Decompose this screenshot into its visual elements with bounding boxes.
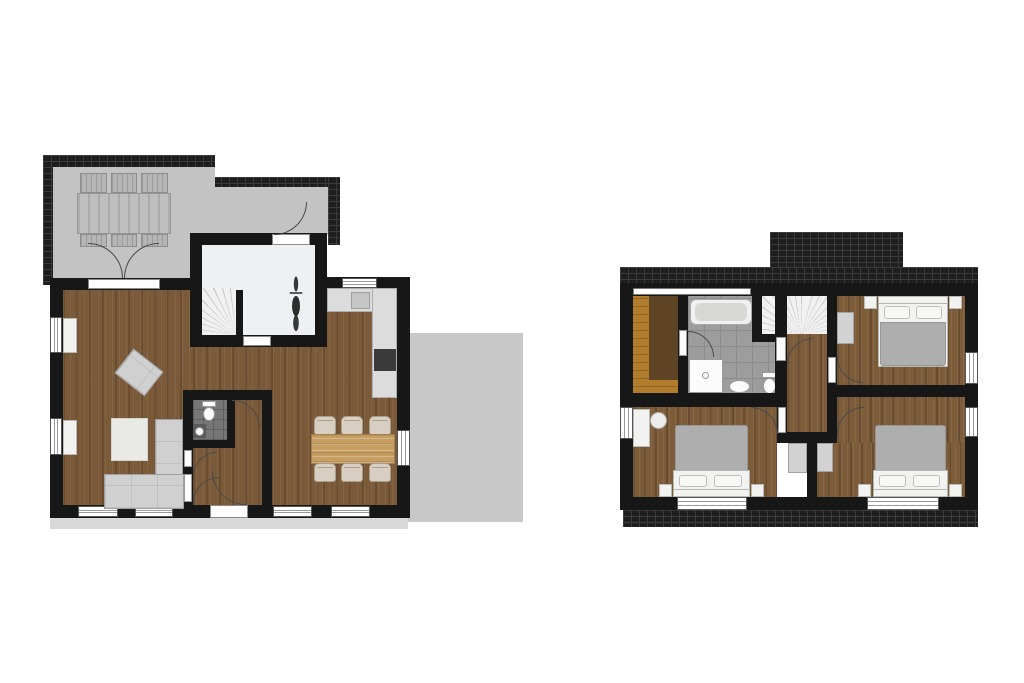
walkway-strip xyxy=(50,518,408,529)
dining-chair xyxy=(314,463,336,482)
wc-toilet xyxy=(203,407,215,421)
nightstand xyxy=(751,484,764,497)
outdoor-chair xyxy=(141,173,168,193)
pillow xyxy=(679,475,707,487)
outdoor-chair xyxy=(111,173,137,193)
bedroom1-bottom-wall xyxy=(827,385,978,397)
window xyxy=(965,407,978,437)
covered-porch xyxy=(215,187,328,235)
nightstand xyxy=(858,484,871,497)
pillow xyxy=(884,306,910,319)
terrace-roof-edge xyxy=(43,155,53,285)
storage-left-wall xyxy=(190,245,202,347)
nightstand xyxy=(864,296,877,309)
window xyxy=(620,407,633,439)
bed2-bed3-divider xyxy=(807,443,817,497)
staircase-upper xyxy=(762,296,827,334)
closet-door xyxy=(184,450,192,467)
bedroom-2-door xyxy=(778,407,786,433)
eave-bottom xyxy=(623,510,978,527)
window xyxy=(397,430,410,466)
pillow xyxy=(916,306,942,319)
corner-sofa xyxy=(104,474,184,509)
staircase-ground xyxy=(202,288,236,335)
wc-bottom-wall xyxy=(183,440,235,448)
bathtub xyxy=(690,299,752,325)
hall-right-wall xyxy=(262,390,272,507)
blanket xyxy=(675,425,748,472)
blanket xyxy=(880,322,946,366)
window xyxy=(273,506,312,517)
pillow xyxy=(879,475,906,487)
eave-top xyxy=(620,267,978,284)
floor-plan-canvas xyxy=(0,0,1024,683)
terrace-roof-edge xyxy=(43,155,215,167)
closet-door xyxy=(184,474,192,502)
window xyxy=(331,506,370,517)
rug xyxy=(111,418,148,461)
left-wall xyxy=(50,278,63,518)
stair-bath-divider xyxy=(752,296,762,336)
terrace-double-door xyxy=(88,279,160,289)
bed-headboard xyxy=(873,489,948,497)
outdoor-dining-table xyxy=(77,193,171,234)
storage-right-wall xyxy=(315,245,327,347)
roof-window-strip xyxy=(633,288,751,295)
dining-table xyxy=(311,434,395,464)
window xyxy=(867,497,939,510)
outdoor-chair xyxy=(80,173,107,193)
bathroom-hall-door xyxy=(776,337,786,361)
front-door xyxy=(210,505,248,518)
shower-drain xyxy=(702,372,709,379)
pillow xyxy=(913,475,940,487)
wardrobe xyxy=(837,312,854,344)
pillow xyxy=(714,475,742,487)
desk-chair xyxy=(650,412,667,429)
blanket xyxy=(875,425,946,472)
dining-chair xyxy=(369,416,391,435)
porch-roof-edge xyxy=(328,177,340,245)
sideboard xyxy=(63,420,77,455)
desk xyxy=(633,409,650,447)
sauna-bathroom-door xyxy=(679,330,687,356)
kitchen-counter xyxy=(372,288,397,398)
window xyxy=(965,352,978,384)
kitchen-sink xyxy=(351,292,370,309)
nightstand xyxy=(659,484,672,497)
dining-chair xyxy=(314,416,336,435)
wardrobe xyxy=(817,443,833,472)
bed-headboard xyxy=(673,489,750,497)
porch-roof-edge xyxy=(205,177,340,187)
upper-left-wall xyxy=(620,283,633,510)
motorcycle-icon xyxy=(288,276,304,332)
stove xyxy=(374,349,396,371)
sideboard xyxy=(63,318,77,353)
outdoor-chair xyxy=(111,234,137,247)
nightstand xyxy=(949,484,962,497)
wardrobe xyxy=(788,443,807,473)
window xyxy=(50,317,62,353)
window xyxy=(677,497,747,510)
storage-interior-door xyxy=(243,336,271,346)
driveway xyxy=(408,333,523,522)
dining-chair xyxy=(341,463,363,482)
kitchen-window xyxy=(342,278,377,288)
dining-chair xyxy=(369,463,391,482)
right-wall xyxy=(397,277,410,518)
stair-wall-stub xyxy=(236,290,243,335)
bath-washbasin xyxy=(729,380,750,393)
bath-bed2-wall xyxy=(633,393,787,407)
dormer-roof xyxy=(770,232,903,272)
wc-basin-bowl xyxy=(195,427,204,436)
storage-exterior-door xyxy=(272,234,310,245)
bedroom-1-door xyxy=(828,357,836,383)
window xyxy=(50,418,62,455)
dining-chair xyxy=(341,416,363,435)
nightstand xyxy=(949,296,962,309)
